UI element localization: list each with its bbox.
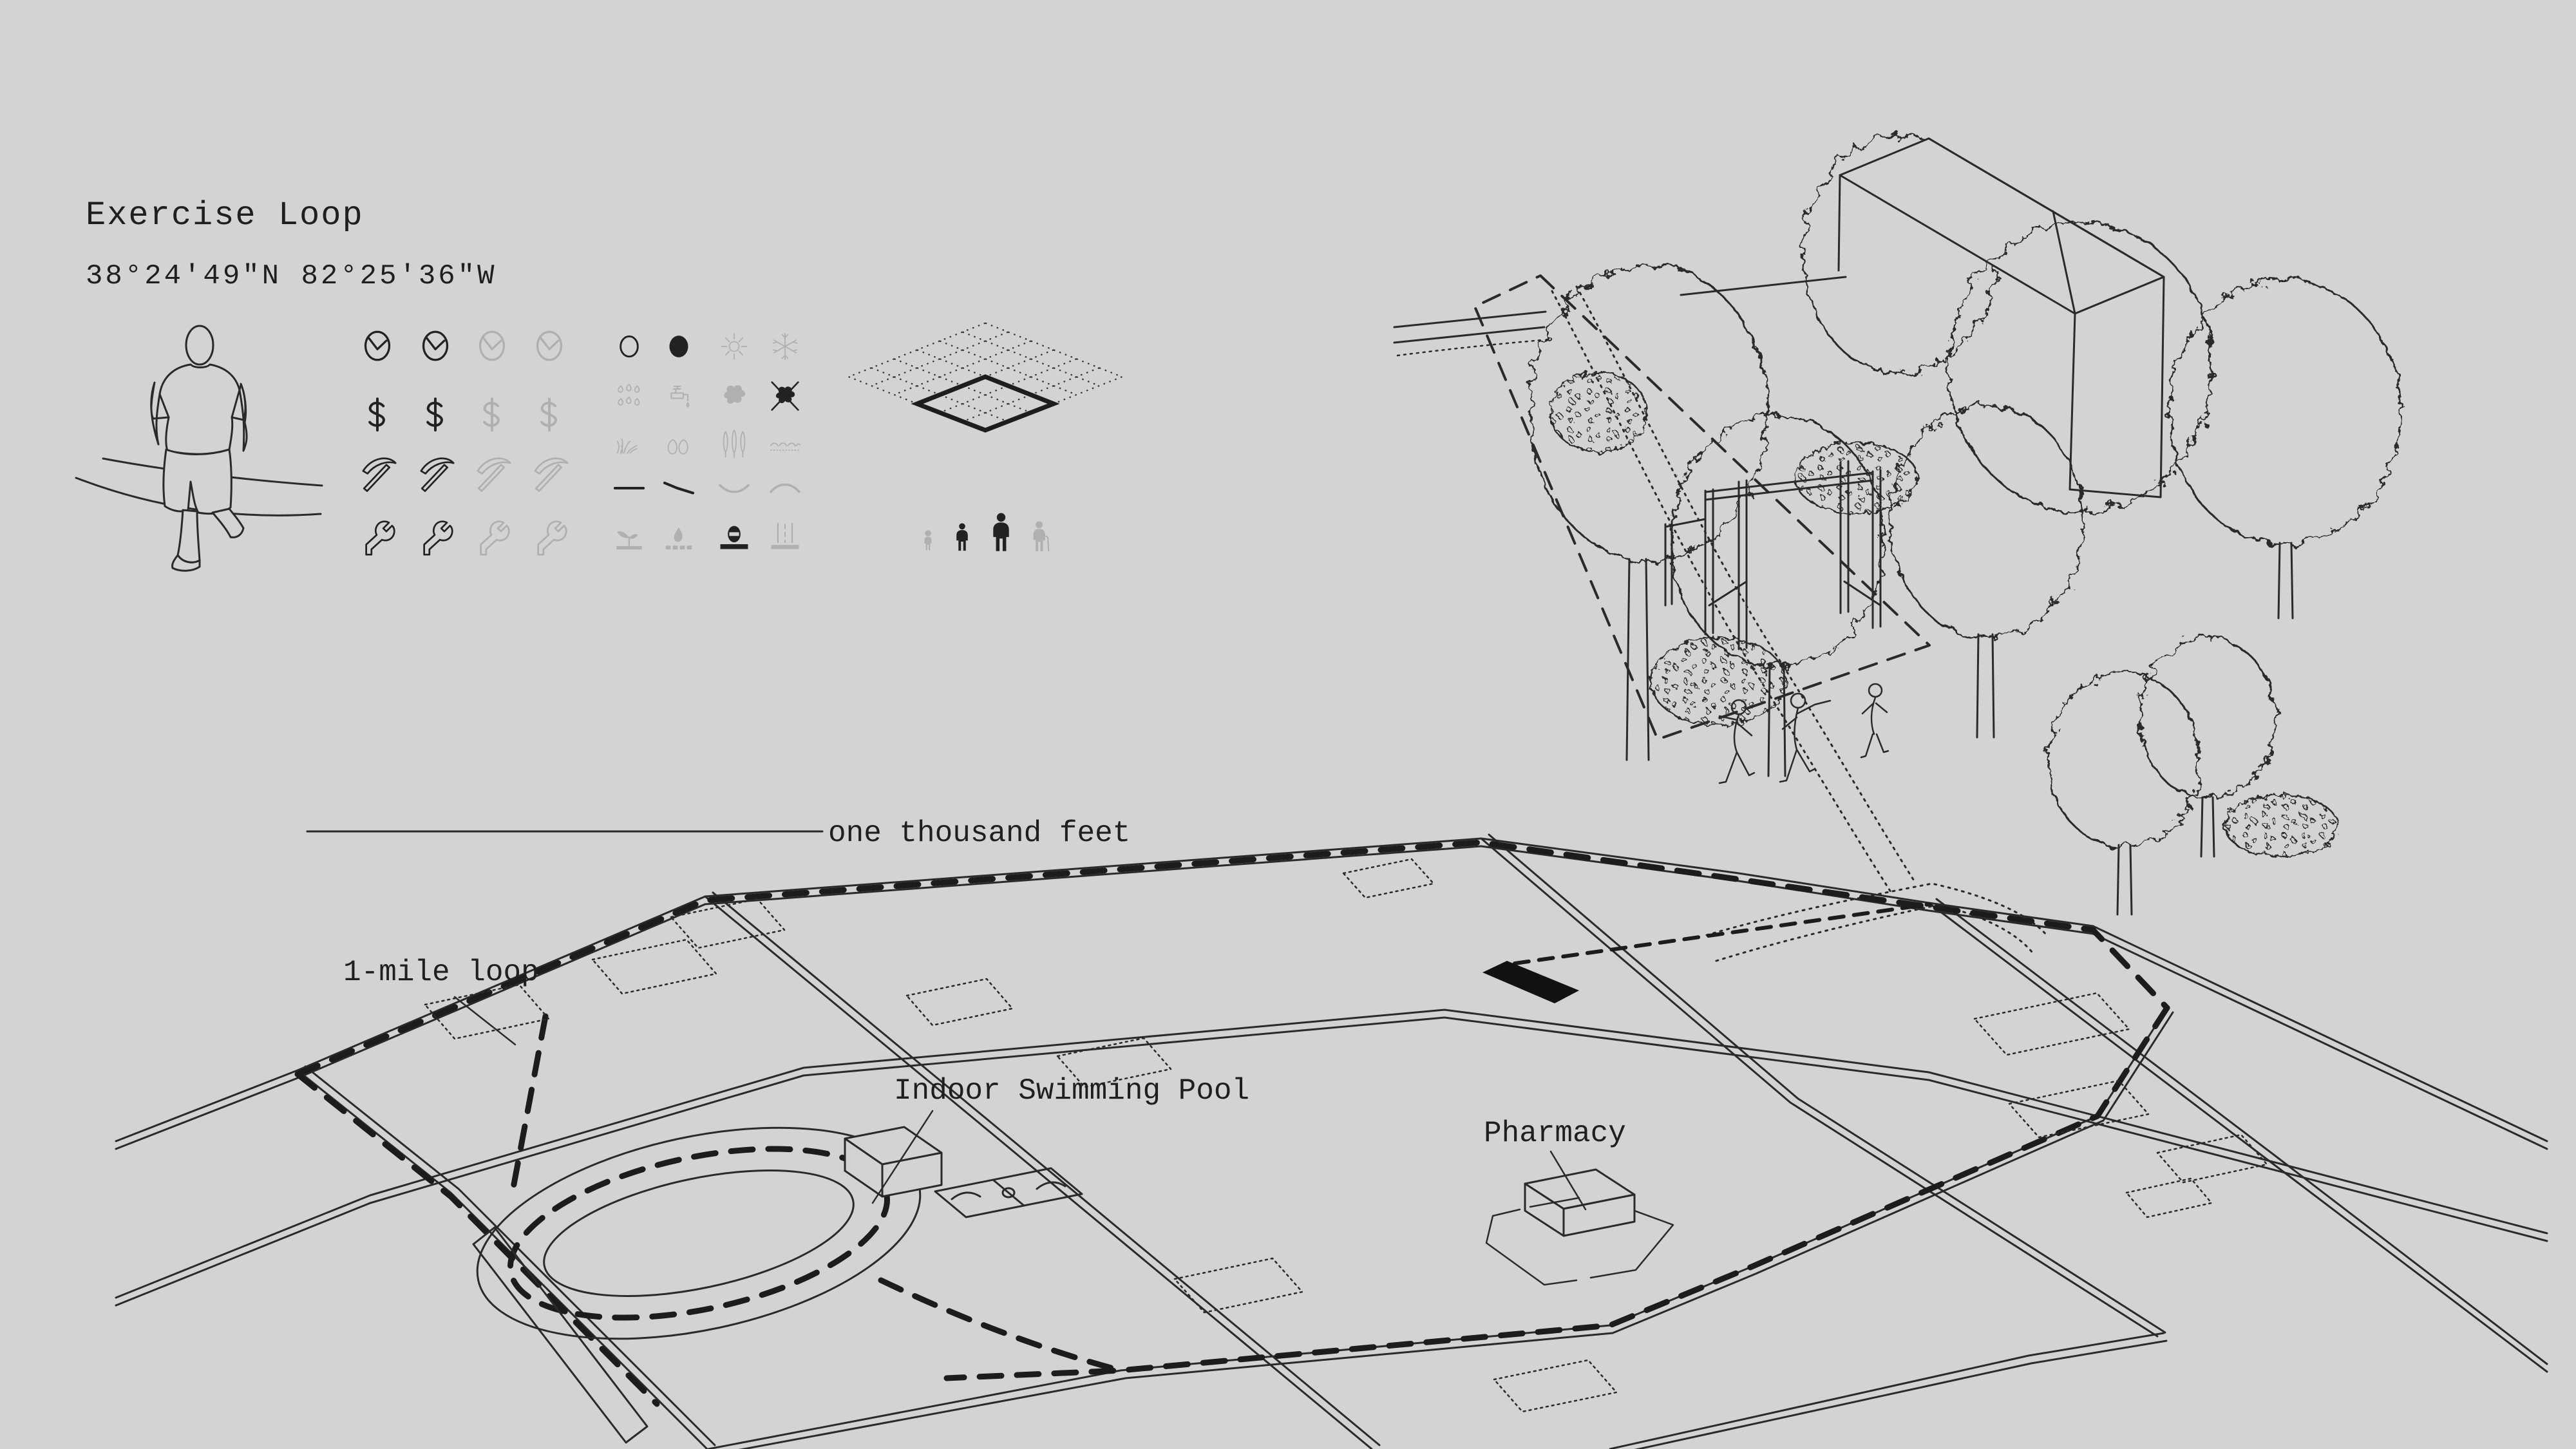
- splat-crossed-icon: [772, 383, 799, 410]
- scale-bar-label: one thousand feet: [828, 817, 1130, 850]
- highlighted-cell-diamond: [917, 377, 1054, 430]
- valley-line-icon: [720, 485, 748, 491]
- highlighted-site: [1482, 961, 1579, 1003]
- slope-line-icon: [665, 483, 693, 493]
- pharmacy-label: Pharmacy: [1484, 1117, 1626, 1150]
- dollar-icon: [428, 399, 442, 430]
- stones-icon: [668, 440, 688, 454]
- street-lines: [116, 838, 2547, 1449]
- wrench-icon: [366, 522, 395, 554]
- exercise-loop-page: Exercise Loop 38°24'49"N 82°25'36"W: [0, 0, 2576, 1449]
- dollar-icon: [542, 399, 556, 430]
- no-entry-base-icon: [721, 526, 748, 549]
- map: [116, 835, 2547, 1449]
- gable-house: [1839, 138, 2164, 497]
- clock-icon: [538, 332, 562, 360]
- snowflake-icon: [773, 334, 797, 360]
- grass-icon: [617, 439, 637, 453]
- wrench-icon: [481, 522, 509, 554]
- road-markings-icon: [772, 524, 799, 549]
- pull-up-bar-frame: [1665, 461, 1880, 649]
- axon-road: [1394, 277, 1846, 355]
- loop-label: 1-mile loop: [343, 956, 539, 989]
- pool-label: Indoor Swimming Pool: [894, 1074, 1249, 1108]
- pool-building: [845, 1127, 942, 1197]
- child-icon: [956, 523, 968, 551]
- circle-outline-icon: [621, 336, 638, 356]
- ripples-icon: [771, 443, 800, 450]
- droplet-base-icon: [666, 527, 692, 549]
- legend-rating-grid: [363, 332, 567, 554]
- mini-jogger: [1861, 684, 1888, 757]
- elderly-icon: [1034, 521, 1049, 551]
- clock-icon: [366, 332, 390, 360]
- tree-trunks: [1627, 543, 2293, 914]
- people-scale: [925, 513, 1049, 551]
- sun-icon: [721, 334, 746, 359]
- circle-filled-icon: [670, 336, 688, 357]
- wrench-icon: [538, 522, 567, 554]
- hill-line-icon: [771, 484, 799, 491]
- pickaxe-icon: [363, 459, 395, 491]
- jogger-figure: [76, 326, 322, 571]
- pickaxe-icon: [421, 459, 453, 491]
- page-title: Exercise Loop: [86, 196, 364, 234]
- adult-icon: [993, 513, 1009, 551]
- scale-bar: one thousand feet: [307, 817, 1130, 850]
- stippled-bushes: [1550, 372, 2338, 857]
- toddler-icon: [925, 530, 932, 550]
- site-locator-grid: [849, 323, 1122, 431]
- clock-icon: [424, 332, 448, 360]
- pharmacy-building: [1486, 1170, 1673, 1285]
- site-connector-dash: [1515, 904, 1930, 963]
- poplars-icon: [724, 430, 745, 458]
- rain-icon: [618, 384, 639, 405]
- dollar-icon: [484, 399, 498, 430]
- dollar-icon: [370, 399, 384, 430]
- pickaxe-icon: [478, 459, 510, 491]
- drawing-surface: Exercise Loop 38°24'49"N 82°25'36"W: [0, 0, 2576, 1449]
- splat-icon: [724, 385, 745, 404]
- basketball-court: [935, 1168, 1082, 1217]
- faucet-icon: [671, 386, 688, 407]
- legend-attribute-grid: [615, 334, 800, 549]
- clock-icon: [480, 332, 504, 360]
- sprout-icon: [616, 531, 641, 549]
- pickaxe-icon: [535, 459, 567, 491]
- wrench-icon: [424, 522, 453, 554]
- site-coordinates: 38°24'49"N 82°25'36"W: [86, 260, 497, 292]
- axon-scene: [1394, 135, 2401, 961]
